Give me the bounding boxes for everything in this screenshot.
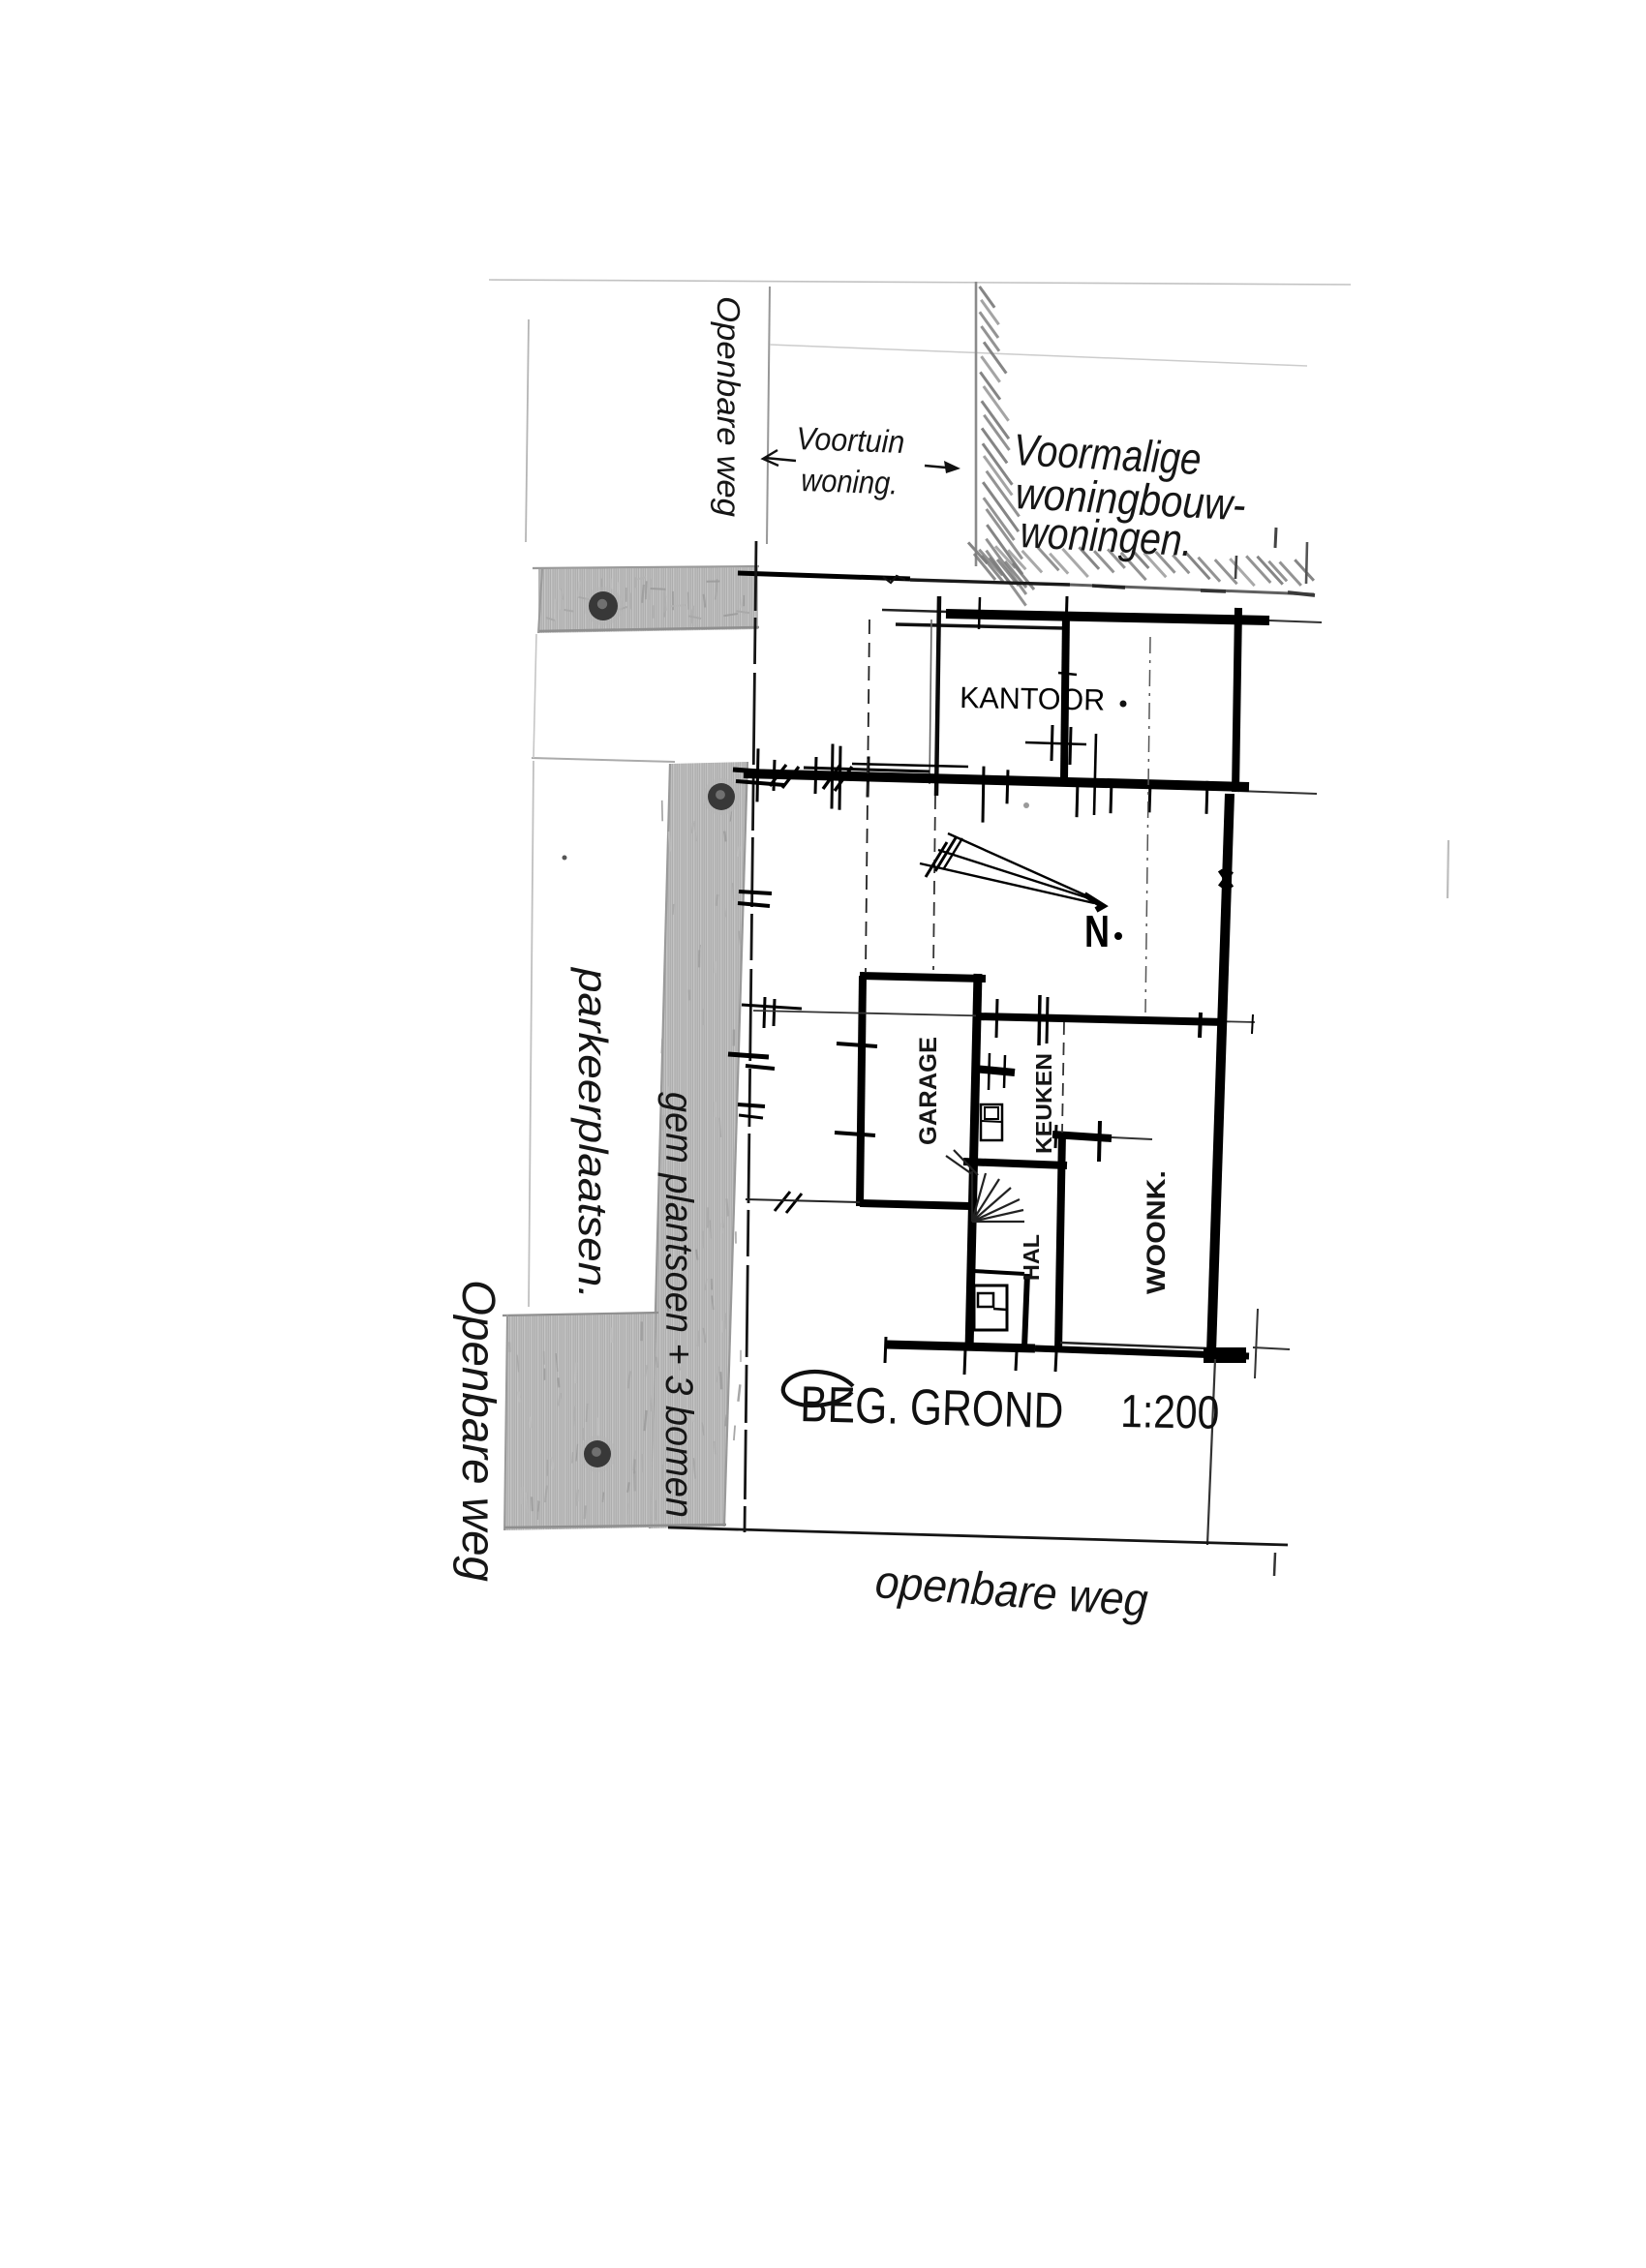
svg-text:HAL: HAL	[1019, 1234, 1044, 1281]
svg-text:woningen.: woningen.	[1019, 506, 1193, 565]
svg-text:KANTOOR: KANTOOR	[960, 680, 1106, 717]
svg-text:BEG. GROND: BEG. GROND	[800, 1376, 1064, 1439]
svg-text:WOONK.: WOONK.	[1142, 1170, 1171, 1294]
svg-text:gem plantsoen + 3 bomen: gem plantsoen + 3 bomen	[657, 1092, 700, 1518]
svg-text:KEUKEN: KEUKEN	[1031, 1053, 1056, 1154]
svg-text:Openbare weg: Openbare weg	[711, 296, 747, 518]
svg-text:parkeerplaatsen.: parkeerplaatsen.	[570, 966, 616, 1299]
svg-text:woning.: woning.	[801, 462, 899, 500]
svg-text:Voortuin: Voortuin	[796, 420, 905, 460]
svg-text:N: N	[1084, 906, 1110, 956]
svg-text:Openbare weg: Openbare weg	[452, 1280, 503, 1582]
svg-text:GARAGE: GARAGE	[915, 1037, 942, 1145]
svg-text:1:200: 1:200	[1120, 1386, 1220, 1439]
